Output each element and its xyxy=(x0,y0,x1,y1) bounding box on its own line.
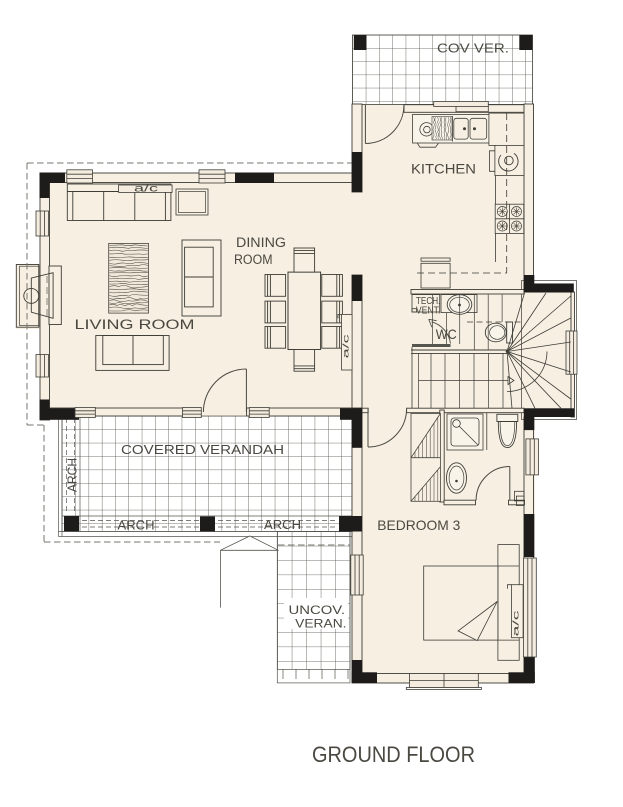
svg-text:DINING: DINING xyxy=(236,235,286,250)
svg-text:COV VER.: COV VER. xyxy=(437,42,509,56)
svg-text:COVERED VERANDAH: COVERED VERANDAH xyxy=(121,442,284,457)
svg-text:UNCOV.: UNCOV. xyxy=(289,603,346,617)
svg-text:ARCH: ARCH xyxy=(66,458,80,492)
svg-text:BEDROOM 3: BEDROOM 3 xyxy=(377,517,460,533)
svg-text:ARCH: ARCH xyxy=(118,518,155,533)
svg-text:ARCH: ARCH xyxy=(264,517,301,532)
svg-text:a/c: a/c xyxy=(134,184,158,195)
svg-text:KITCHEN: KITCHEN xyxy=(411,162,476,177)
svg-text:VENT.: VENT. xyxy=(416,306,441,317)
svg-text:GROUND FLOOR: GROUND FLOOR xyxy=(312,742,475,767)
svg-text:WC: WC xyxy=(436,326,457,342)
svg-text:a/c: a/c xyxy=(512,611,521,637)
svg-text:ROOM: ROOM xyxy=(234,252,273,267)
svg-text:VERAN.: VERAN. xyxy=(295,617,346,631)
svg-text:a/c: a/c xyxy=(342,334,351,358)
svg-text:LIVING ROOM: LIVING ROOM xyxy=(75,317,195,332)
